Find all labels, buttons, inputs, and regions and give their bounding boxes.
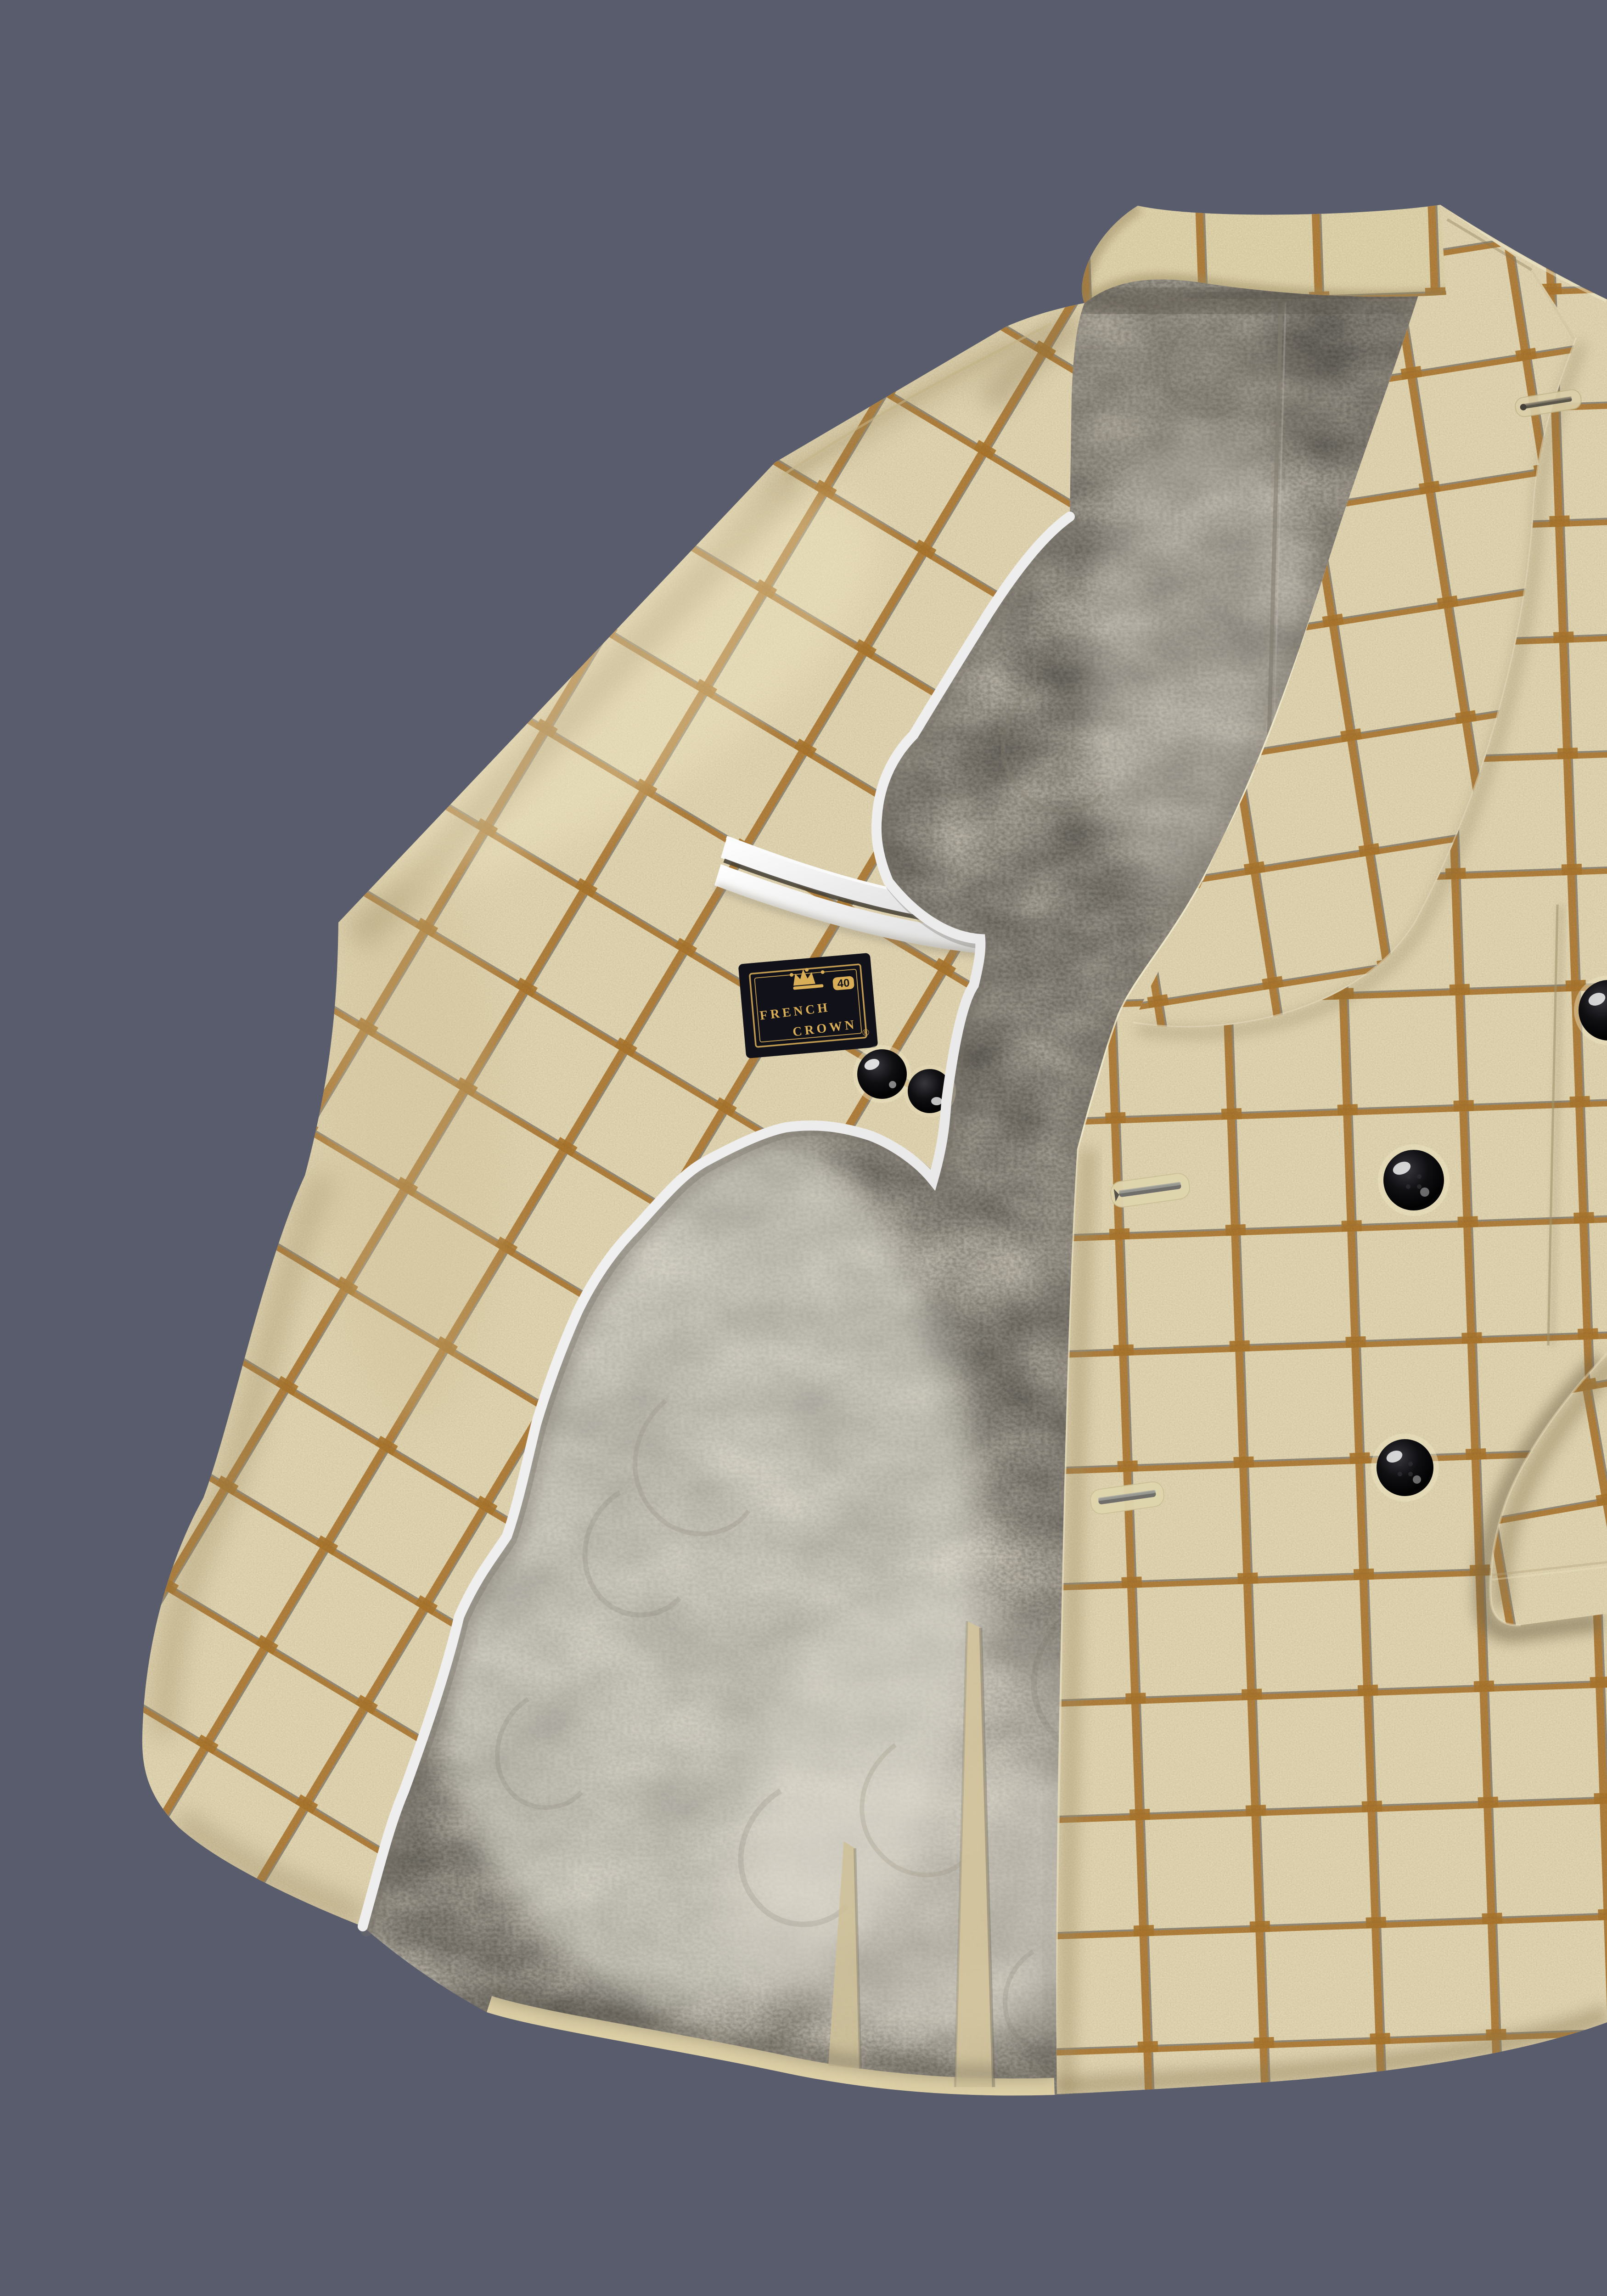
svg-text:®: ®	[862, 1028, 870, 1038]
svg-text:40: 40	[837, 977, 850, 990]
